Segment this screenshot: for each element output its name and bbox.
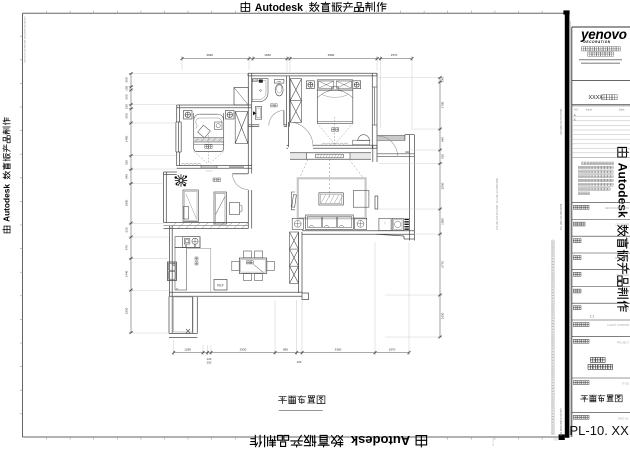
svg-text:1090: 1090	[441, 218, 445, 225]
svg-text:940: 940	[441, 137, 445, 142]
svg-text:X.: X.	[574, 117, 577, 121]
svg-text:3990: 3990	[328, 53, 335, 57]
svg-text:1660: 1660	[264, 53, 271, 57]
svg-text:1:1: 1:1	[590, 315, 595, 319]
svg-text:Autodesk: Autodesk	[2, 184, 12, 222]
svg-text:1930: 1930	[441, 312, 445, 319]
svg-text:3360: 3360	[335, 347, 342, 351]
svg-text:660: 660	[125, 94, 129, 99]
svg-text:1790: 1790	[441, 101, 445, 108]
svg-text:Issue: Issue	[586, 107, 593, 111]
svg-text:2930: 2930	[240, 347, 247, 351]
svg-text:PL-10. XX: PL-10. XX	[570, 423, 630, 438]
svg-text:DRAWN: DRAWN	[619, 239, 629, 243]
svg-text:640: 640	[125, 174, 129, 179]
svg-text:TITLE: TITLE	[622, 382, 629, 386]
svg-text:FAX (86) 010 87217587: FAX (86) 010 87217587	[560, 108, 563, 135]
svg-text:1570: 1570	[391, 53, 398, 57]
svg-text:xxxxxxx: xxxxxxx	[206, 171, 213, 173]
svg-text:1280: 1280	[184, 347, 191, 351]
svg-text:CHECKED: CHECKED	[616, 273, 629, 277]
svg-text:Date: Date	[619, 107, 625, 111]
svg-text:990: 990	[283, 347, 288, 351]
svg-text:APPROVED: APPROVED	[615, 256, 630, 260]
svg-text:970: 970	[125, 245, 129, 250]
svg-text:1480: 1480	[125, 135, 129, 142]
svg-text:Autodesk: Autodesk	[350, 433, 410, 448]
svg-text:3090: 3090	[206, 53, 213, 57]
svg-text:PROJECT: PROJECT	[617, 340, 630, 344]
svg-text:SCALE: SCALE	[620, 306, 629, 310]
svg-text:650: 650	[125, 113, 129, 118]
svg-text:NO.: NO.	[574, 107, 579, 111]
svg-text:DESIGN DIRECTOR: DESIGN DIRECTOR	[605, 206, 629, 210]
svg-text:630: 630	[125, 227, 129, 232]
svg-text:TEL (86) 010 88515566: TEL (86) 010 88515566	[560, 203, 563, 230]
svg-text:CLIENT CONFIRM: CLIENT CONFIRM	[607, 323, 629, 327]
svg-text:田田: 田田	[554, 438, 558, 441]
svg-text:600: 600	[125, 77, 129, 82]
svg-text:24617124 010 (98) XAF 66551588: 24617124 010 (98) XAF 66551588 010 (98) …	[24, 15, 27, 63]
svg-text:1570: 1570	[389, 347, 396, 351]
svg-text:DESIGNER: DESIGNER	[615, 223, 629, 227]
svg-text:DWG No.: DWG No.	[618, 416, 629, 420]
svg-text:1440: 1440	[125, 270, 129, 277]
svg-text:630: 630	[125, 160, 129, 165]
svg-text:190: 190	[125, 104, 129, 109]
svg-text:5F C 82 ...: 5F C 82 ...	[493, 435, 495, 446]
svg-text:REF: REF	[217, 284, 224, 288]
svg-text:Autodesk: Autodesk	[255, 2, 303, 14]
svg-text:A.: A.	[574, 113, 577, 117]
svg-text:DECORATION: DECORATION	[584, 40, 611, 44]
svg-text:1800: 1800	[125, 199, 129, 206]
svg-text:DATE: DATE	[622, 290, 629, 294]
svg-text:100: 100	[297, 360, 302, 364]
svg-text:150: 150	[125, 85, 129, 90]
svg-text:1930: 1930	[125, 307, 129, 314]
svg-text:010 88515566 87217587: 010 88515566 87217587	[560, 408, 563, 436]
svg-text:140: 140	[441, 77, 445, 82]
svg-text:250: 250	[207, 361, 212, 365]
svg-text:XXXX: XXXX	[589, 95, 604, 101]
svg-text:2770: 2770	[441, 261, 445, 268]
svg-text:630: 630	[441, 154, 445, 159]
svg-text:FAX (86) 010 87217587 TEL (86: FAX (86) 010 87217587 TEL (86) 010 88515…	[496, 177, 499, 230]
svg-text:2060: 2060	[441, 182, 445, 189]
